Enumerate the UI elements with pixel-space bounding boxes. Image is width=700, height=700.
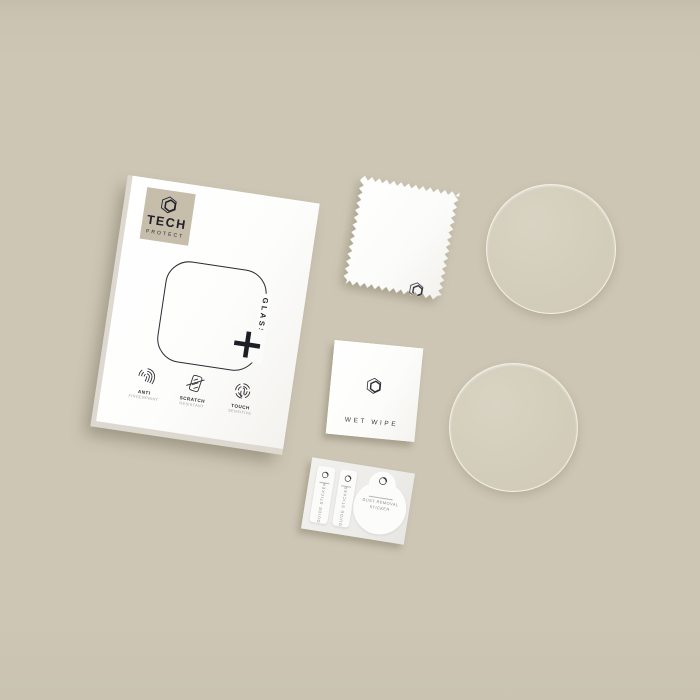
scratch-icon xyxy=(183,372,207,396)
plus-icon xyxy=(230,327,264,361)
fingerprint-icon xyxy=(135,365,159,389)
feature-row: ANTI FINGERPRINT SCRATCH RESISTANT TOUCH… xyxy=(119,363,268,418)
feature-anti-fingerprint: ANTI FINGERPRINT xyxy=(119,363,172,404)
product-photo-scene: TECH PROTECT GLASS FIT ANTI FINGERPRINT … xyxy=(0,0,700,700)
wet-wipe-hexagon-logo-icon xyxy=(365,376,385,396)
ring-logo-icon xyxy=(377,475,390,488)
wet-wipe-label: WET WIPE xyxy=(327,415,416,430)
glass-protector-disc-1 xyxy=(486,184,616,314)
guide-sticker-label: GUIDE STICKER xyxy=(338,485,349,526)
touch-icon xyxy=(231,379,255,403)
watch-shape-outline: GLASS FIT xyxy=(154,258,270,374)
microfiber-cloth-wrap xyxy=(342,175,460,301)
alignment-plus xyxy=(228,325,267,364)
techprotect-hexagon-logo-icon xyxy=(158,195,180,217)
guide-sticker-1: GUIDE STICKER xyxy=(309,465,335,524)
microfiber-cloth xyxy=(342,175,460,301)
box-face: TECH PROTECT GLASS FIT ANTI FINGERPRINT … xyxy=(96,176,320,449)
guide-sticker-label: GUIDE STICKER xyxy=(315,482,326,523)
feature-touch-sensitive: TOUCH SENSITIVE xyxy=(215,377,268,418)
ring-logo-icon xyxy=(342,473,352,483)
cloth-hexagon-logo-icon xyxy=(407,280,427,300)
wet-wipe-sachet: WET WIPE xyxy=(326,340,424,442)
sticker-sheet: GUIDE STICKER GUIDE STICKER DUST REMOVAL… xyxy=(301,457,415,544)
feature-scratch-resistant: SCRATCH RESISTANT xyxy=(167,370,220,411)
feature-subtitle: FINGERPRINT xyxy=(128,394,158,402)
glass-protector-disc-2 xyxy=(449,363,578,492)
brand-logo-patch: TECH PROTECT xyxy=(140,187,196,246)
ring-logo-icon xyxy=(320,470,330,480)
glass-fit-box: TECH PROTECT GLASS FIT ANTI FINGERPRINT … xyxy=(90,175,319,455)
